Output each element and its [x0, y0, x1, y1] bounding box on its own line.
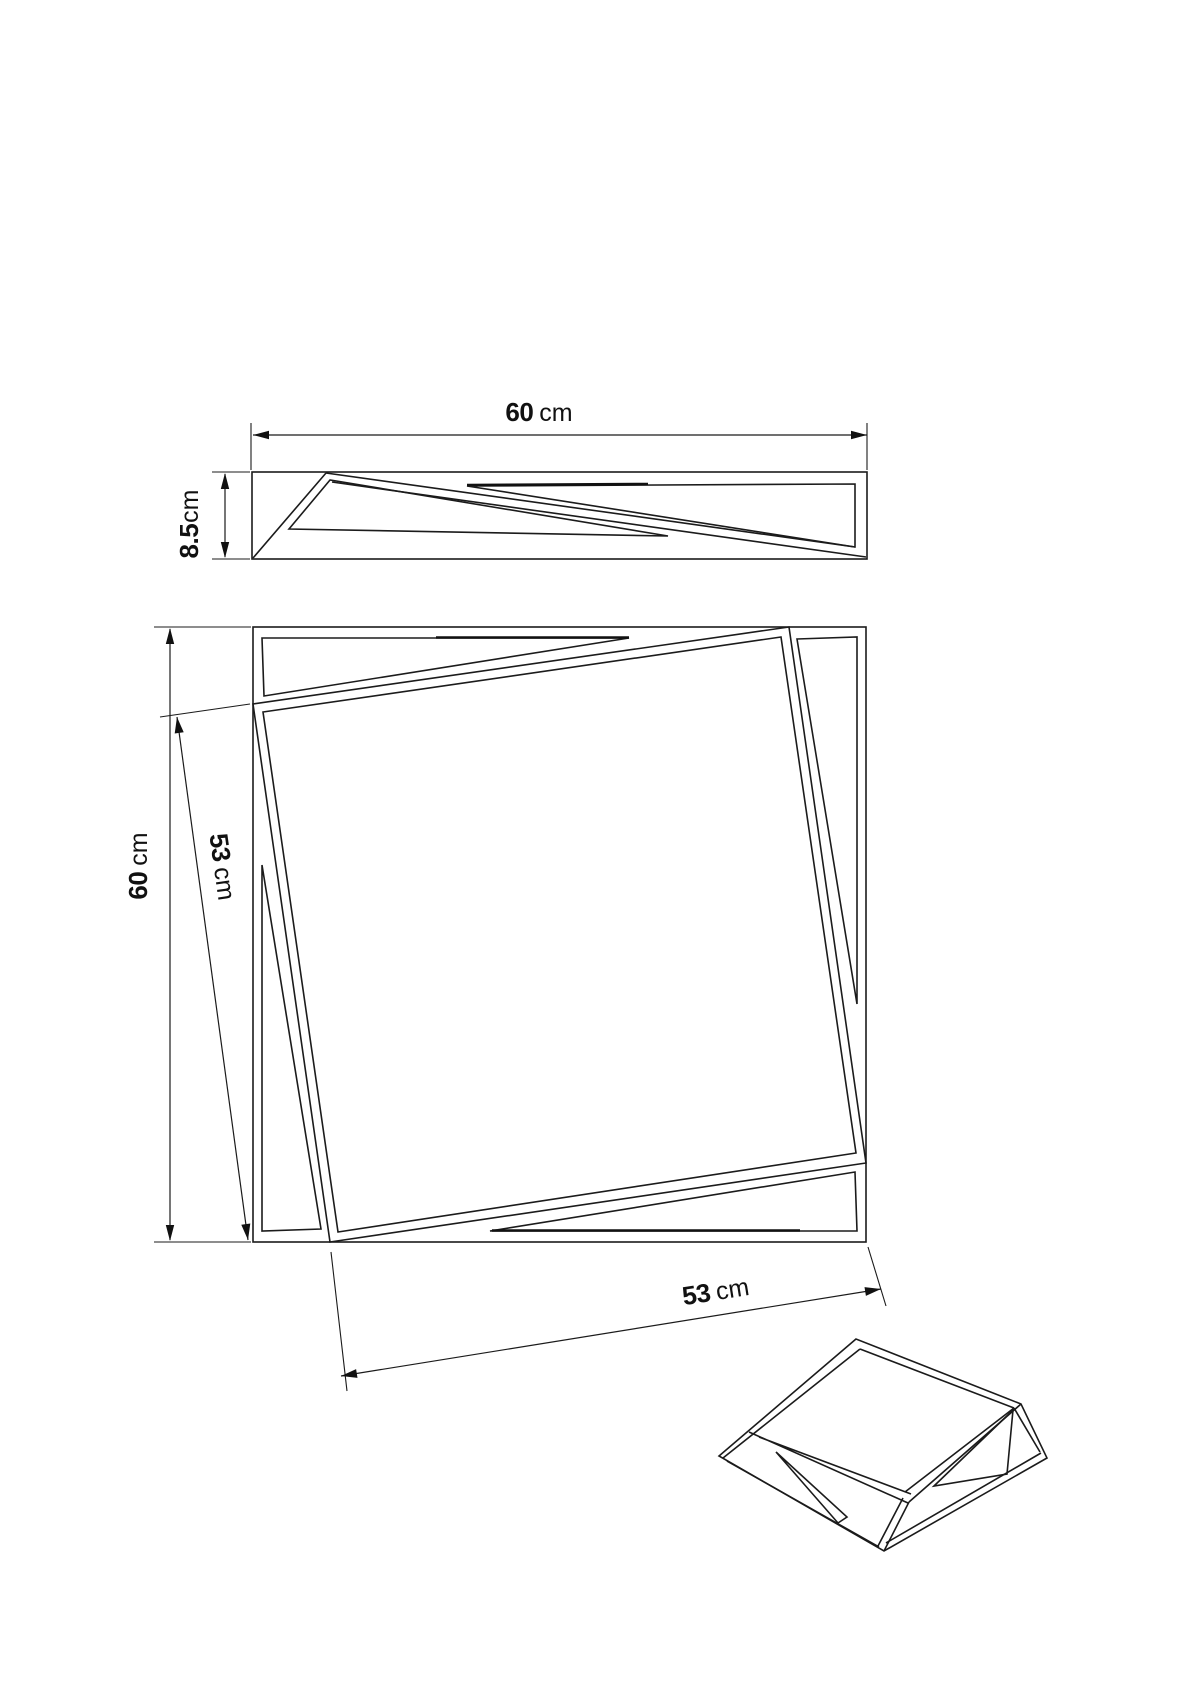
outer-frame-outline	[253, 627, 866, 1242]
extension-lines	[251, 423, 867, 470]
arrow-left-icon	[253, 431, 269, 439]
perspective-silhouette	[719, 1339, 1047, 1551]
perspective-view	[719, 1339, 1047, 1551]
extension-lines	[212, 472, 250, 559]
front-view: 60cm 53cm 53cm	[123, 627, 886, 1391]
inner-frame-inner-edge	[263, 637, 856, 1232]
dimension-side-depth: 8.5cm	[174, 472, 250, 559]
dimension-inner-side: 53cm	[160, 704, 250, 1240]
arrow-up-icon	[175, 717, 184, 734]
side-view-right-brace	[467, 484, 855, 547]
arrow-down-icon	[221, 542, 229, 558]
front-height-label: 60cm	[123, 832, 153, 899]
inner-frame-outer-edge	[253, 627, 866, 1242]
perspective-top-face	[723, 1349, 1021, 1503]
dimension-side-width: 60cm	[251, 397, 867, 470]
arrow-right-icon	[851, 431, 867, 439]
inner-bottom-label: 53cm	[680, 1271, 751, 1311]
side-view: 60cm 8.5cm	[174, 397, 867, 559]
inner-side-label: 53cm	[203, 831, 242, 902]
dimension-inner-bottom: 53cm	[331, 1247, 886, 1391]
extension-lines	[331, 1247, 886, 1391]
extension-line	[160, 704, 250, 717]
arrow-up-icon	[221, 473, 229, 489]
perspective-corner-post	[878, 1498, 909, 1551]
extension-lines	[154, 627, 251, 1242]
dimension-front-height: 60cm	[123, 627, 251, 1242]
side-depth-label: 8.5cm	[174, 490, 204, 559]
technical-drawing: 60cm 8.5cm 60cm	[0, 0, 1190, 1684]
arrow-down-icon	[166, 1225, 174, 1241]
perspective-right-brace	[934, 1410, 1013, 1486]
arrow-right-icon	[865, 1287, 882, 1296]
arrow-up-icon	[166, 628, 174, 644]
side-view-brace-heavy-edge	[467, 484, 648, 485]
arrow-down-icon	[241, 1224, 250, 1241]
arrow-left-icon	[341, 1369, 358, 1378]
perspective-left-brace	[776, 1452, 847, 1523]
side-width-label: 60cm	[505, 397, 572, 427]
dimension-line	[177, 717, 248, 1240]
drawing-sheet: 60cm 8.5cm 60cm	[0, 0, 1190, 1684]
dimension-line	[341, 1289, 881, 1376]
